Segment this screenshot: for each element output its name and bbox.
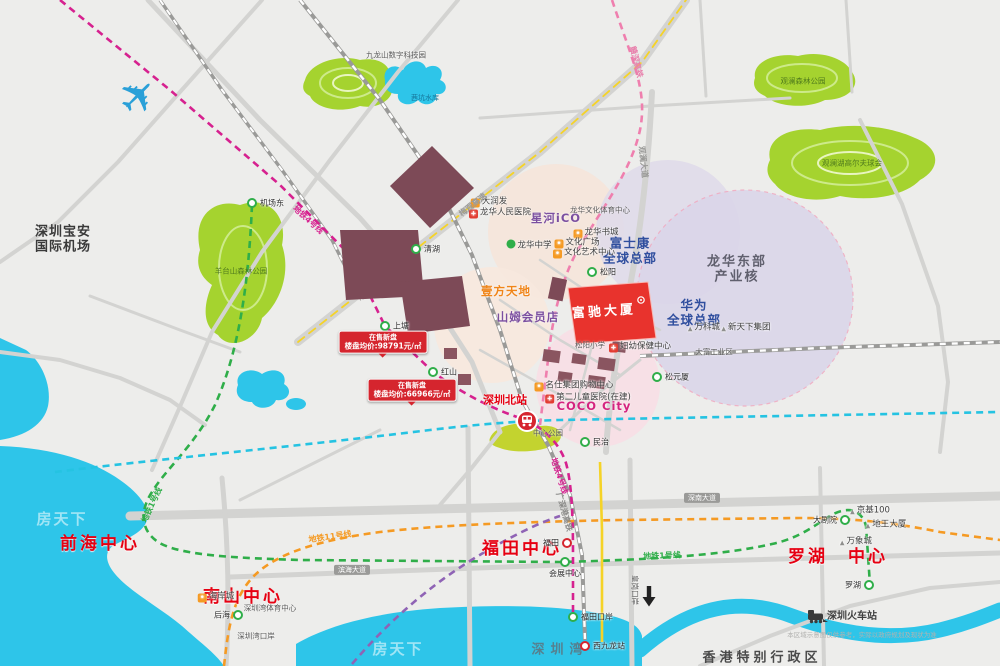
station-icon-松元厦 xyxy=(652,372,662,382)
watermark-left: 房天下 xyxy=(36,511,87,529)
label-futian-center: 福田中心 xyxy=(482,539,562,559)
road-plate-binhai-avenue: 滨海大道 xyxy=(334,565,370,575)
station-label-松阳: 松阳 xyxy=(600,267,616,276)
label-sams-club: 山姆会员店 xyxy=(497,311,560,325)
station-icon-大剧院 xyxy=(840,515,850,525)
line-label-metro1-west: 地铁1号线 xyxy=(140,486,164,524)
poi-longhua-peoples-hospital: 龙华人民医院 xyxy=(469,208,531,219)
station-icon-松阳 xyxy=(587,267,597,277)
label-luohu-center: 罗湖 中心 xyxy=(788,547,888,567)
green-marker-icon xyxy=(506,239,515,248)
price-tag-2: 在售新盘楼盘均价:66966元/㎡ xyxy=(368,379,457,402)
station-label-后海: 后海 xyxy=(214,610,230,619)
poi-kingkey100: 京基100 xyxy=(850,506,890,517)
poi-haianchen: 海岸城 xyxy=(198,592,235,603)
station-icon-会展中心 xyxy=(560,557,570,567)
watermark-bay: 房天下 xyxy=(372,641,423,659)
station-label-机场东: 机场东 xyxy=(260,198,284,207)
poi-mingshi-mall: 名仕集团购物中心 xyxy=(534,381,613,392)
poi-shenzhen-bay-port: 深圳湾口岸 xyxy=(237,633,275,642)
tri-marker-icon xyxy=(840,539,845,548)
tri-marker-icon xyxy=(866,522,871,531)
poi-mission-hills-golf: 观澜湖高尔夫球会 xyxy=(822,160,882,169)
poi-diwang-building: 地王大厦 xyxy=(866,520,907,531)
station-label-西九龙站: 西九龙站 xyxy=(593,641,625,650)
label-huawei-hq: 华为 全球总部 xyxy=(667,298,721,328)
station-label-福田口岸: 福田口岸 xyxy=(581,612,613,621)
station-label-大剧院: 大剧院 xyxy=(813,515,837,524)
tri-marker-icon xyxy=(688,325,693,334)
poi-center-park: 中心公园 xyxy=(533,430,563,439)
poi-longhua-culture-sports-center: 龙华文化体育中心 xyxy=(570,207,630,216)
poi-shenzhen-bay-sports-center: 深圳湾体育中心 xyxy=(244,605,297,614)
station-icon-上塘 xyxy=(380,321,390,331)
line-label-metro11: 地铁11号线 xyxy=(308,529,352,544)
red-marker-icon xyxy=(609,344,618,353)
station-icon-机场东 xyxy=(247,198,257,208)
station-icon-后海 xyxy=(233,610,243,620)
station-label-会展中心: 会展中心 xyxy=(549,569,581,578)
label-airport: 深圳宝安 国际机场 xyxy=(35,225,91,256)
poi-xintianxia-group: 新天下集团 xyxy=(721,323,770,334)
poi-second-children-hospital: 第二儿童医院(在建) xyxy=(545,393,631,404)
line-label-metro4-south: 地铁4号线 xyxy=(549,457,570,496)
orange-marker-icon xyxy=(471,199,480,208)
label-foxconn-hq: 富士康 全球总部 xyxy=(603,236,657,266)
red-marker-icon xyxy=(545,395,554,404)
label-fuchi-building: 富驰大厦 xyxy=(572,302,637,322)
line-label-ganshen-hsr: 赣深高铁 xyxy=(628,45,645,78)
poi-jiulongshan-tech-park: 九龙山数字科技园 xyxy=(366,52,426,61)
label-xinghe-ico: 星河iCO xyxy=(531,212,581,226)
map-disclaimer: 本区域示意图仅供参考，实际以政府规划及现状为准 xyxy=(787,632,937,640)
poi-longhua-book-city: 龙华书城 xyxy=(573,228,618,239)
station-icon-清湖 xyxy=(411,244,421,254)
station-label-清湖: 清湖 xyxy=(424,244,440,253)
label-longhua-east-industry: 龙华东部 产业核 xyxy=(707,255,767,286)
line-label-metro4-north: 地铁4号线 xyxy=(291,204,325,236)
line-label-metro1-east: 地铁1号线 xyxy=(643,551,681,562)
station-icon-西九龙站 xyxy=(580,641,590,651)
poi-mixc: 万象城 xyxy=(840,537,872,548)
line-label-gsg-hsr: 广深港高铁 xyxy=(554,491,574,532)
poi-guanlan-forest-park: 观澜森林公园 xyxy=(781,78,826,87)
poi-qiankeng-reservoir: 茜坑水库 xyxy=(411,94,439,102)
station-icon-红山 xyxy=(428,367,438,377)
label-qianhai-center: 前海中心 xyxy=(60,534,140,554)
label-coco-city: COCO City xyxy=(557,400,632,414)
station-icon-福田口岸 xyxy=(568,612,578,622)
station-label-松元厦: 松元厦 xyxy=(665,372,689,381)
orange-marker-icon xyxy=(573,230,582,239)
line-label-meiguan-expwy: 梅观高速 xyxy=(457,191,488,218)
road-plate-shennan-avenue: 深南大道 xyxy=(684,493,720,503)
poi-dafu-industrial: 大富工业区 xyxy=(695,349,733,358)
orange-marker-icon xyxy=(198,594,207,603)
orange-marker-icon xyxy=(554,240,563,249)
station-label-上塘: 上塘 xyxy=(393,321,409,330)
poi-fuyou-center: 妇幼保健中心 xyxy=(609,342,671,353)
tri-marker-icon xyxy=(721,325,726,334)
station-icon-福田 xyxy=(562,538,572,548)
station-label-福田: 福田 xyxy=(543,538,559,547)
poi-yangtaishan-forest-park: 羊台山森林公园 xyxy=(215,268,268,277)
poi-longhua-middle-school: 龙华中学 xyxy=(506,239,551,250)
tri-marker-icon xyxy=(850,508,855,517)
line-label-guanlan-avenue: 观澜大道 xyxy=(637,146,650,179)
poi-huanggang-port: 皇岗口岸 xyxy=(630,575,639,605)
station-icon-罗湖 xyxy=(864,580,874,590)
map-canvas[interactable]: ✈ 前海中心南山中心福田中心罗湖 中心富士康 全球总部华为 全球总部龙华东部 产… xyxy=(0,0,1000,666)
orange-marker-icon xyxy=(534,383,543,392)
poi-vanke-city: 万科城 xyxy=(688,323,720,334)
label-yifang-tiandi: 壹方天地 xyxy=(481,285,531,299)
label-shenzhen-north-station: 深圳北站 xyxy=(483,395,527,408)
label-hongkong-sar: 香港特别行政区 xyxy=(702,650,821,665)
price-tag-1: 在售新盘楼盘均价:98791元/㎡ xyxy=(339,331,428,354)
label-shenzhen-railway-station: 深圳火车站 xyxy=(827,611,877,623)
poi-culture-square: 文化广场 xyxy=(554,238,599,249)
poi-culture-art-center: 文化艺术中心 xyxy=(553,248,615,259)
station-label-红山: 红山 xyxy=(441,367,457,376)
station-label-民治: 民治 xyxy=(593,437,609,446)
map-labels-layer: 前海中心南山中心福田中心罗湖 中心富士康 全球总部华为 全球总部龙华东部 产业核… xyxy=(0,0,1000,666)
poi-darunfa: 大润发 xyxy=(471,197,508,208)
label-nanshan-center: 南山中心 xyxy=(203,587,283,607)
poi-songyang-primary-school: 松阳小学 xyxy=(575,342,605,351)
orange-marker-icon xyxy=(553,250,562,259)
station-icon-民治 xyxy=(580,437,590,447)
red-marker-icon xyxy=(469,210,478,219)
station-label-罗湖: 罗湖 xyxy=(845,580,861,589)
